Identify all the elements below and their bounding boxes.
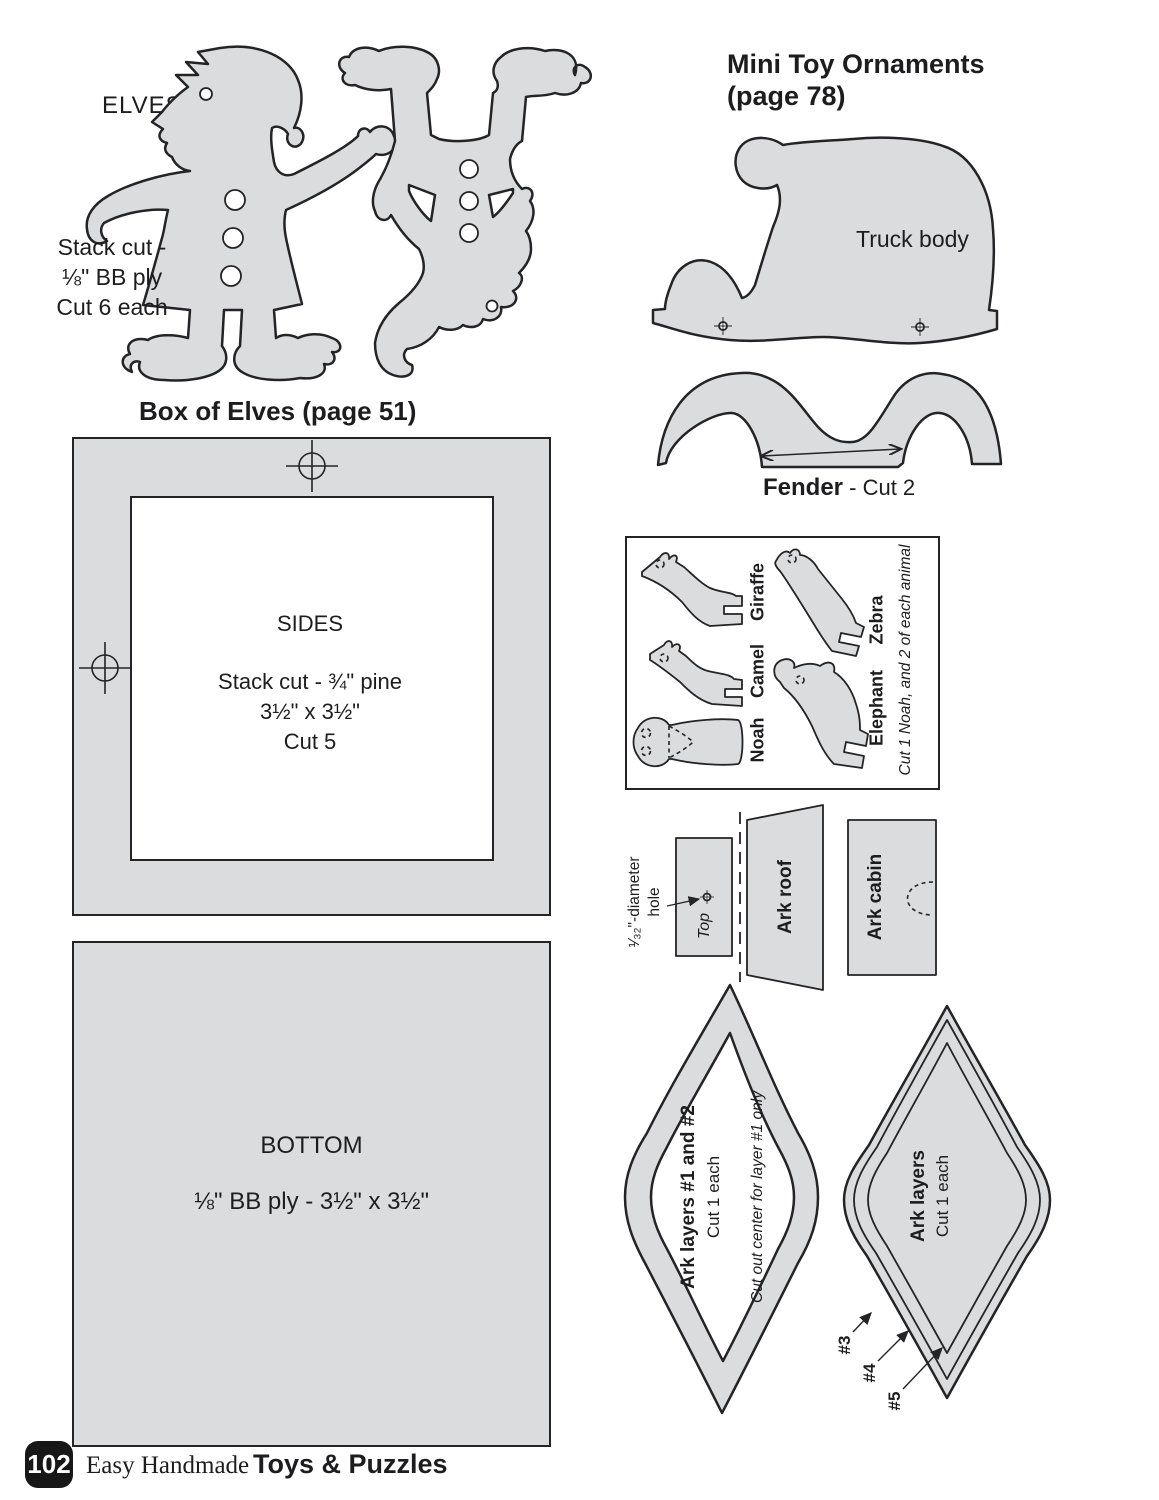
tag3-arrow [853, 1313, 871, 1332]
elephant-pattern-icon [770, 652, 875, 772]
bottom-text: BOTTOM ⅛" BB ply - 3½" x 3½" [74, 1131, 549, 1217]
giraffe-pattern-icon [638, 550, 743, 628]
zebra-pattern-icon [770, 545, 865, 657]
bottom-pattern-square: BOTTOM ⅛" BB ply - 3½" x 3½" [72, 941, 551, 1447]
animals-cut-caption: Cut 1 Noah, and 2 of each animal [897, 545, 915, 776]
truck-body-label: Truck body [856, 226, 969, 253]
elf-button-hole [221, 266, 241, 286]
camel-pattern-icon [638, 638, 743, 706]
sides-text: SIDES Stack cut - ¾" pine 3½" x 3½" Cut … [130, 609, 490, 757]
sides-title: SIDES [130, 609, 490, 639]
layer-3-tag: #3 [835, 1336, 855, 1355]
camel-label: Camel [748, 644, 769, 698]
hole-note-line: hole [645, 856, 665, 947]
noah-pattern-icon [632, 706, 747, 778]
note-line: Cut 6 each [28, 292, 196, 322]
sides-line: 3½" x 3½" [130, 697, 490, 727]
crosshair-registration-icon [77, 640, 133, 696]
fender-caption: Fender - Cut 2 [763, 474, 915, 502]
ark-top-label: Top [696, 913, 714, 939]
hole-note-line: ¹⁄₃₂"-diameter [625, 856, 645, 947]
fender-label: Fender [763, 474, 843, 501]
elf-button-hole [460, 160, 478, 178]
elves-cut-note: Stack cut - ⅛" BB ply Cut 6 each [28, 232, 196, 322]
mini-toy-heading: Mini Toy Ornaments (page 78) [727, 48, 985, 112]
note-line: Stack cut - [28, 232, 196, 262]
elf-eye-hole [200, 88, 212, 100]
box-of-elves-heading: Box of Elves (page 51) [139, 396, 416, 427]
footer-book-title: Toys & Puzzles [253, 1449, 448, 1480]
heading-line: (page 78) [727, 80, 985, 112]
tag4-arrow [878, 1331, 908, 1361]
ark-cabin-rect [848, 820, 936, 975]
ark-roof-label: Ark roof [775, 860, 797, 934]
fender-pattern-icon [650, 363, 1005, 473]
ark-layers-cut: Cut 1 each [933, 1155, 953, 1237]
elf-upside-down-pattern-icon [335, 45, 600, 390]
ark-layers-1-2-title: Ark layers #1 and #2 [678, 1105, 700, 1289]
bottom-line: ⅛" BB ply - 3½" x 3½" [74, 1187, 549, 1217]
elephant-label: Elephant [867, 670, 888, 746]
elf-upside-down-silhouette [339, 47, 591, 377]
bottom-title: BOTTOM [74, 1131, 549, 1161]
sides-pattern-frame: SIDES Stack cut - ¾" pine 3½" x 3½" Cut … [72, 437, 551, 916]
footer-series-title: Easy Handmade [86, 1452, 249, 1480]
fender-cut-note: - Cut 2 [843, 475, 915, 500]
ark-layers-1-2-note: Cut out center for layer #1 only [749, 1091, 767, 1303]
page-number: 102 [27, 1449, 70, 1480]
zebra-label: Zebra [867, 595, 888, 644]
layer-5-tag: #5 [885, 1392, 905, 1411]
book-page: ELVES Stack cut - ⅛" BB ply Cut 6 each B… [0, 0, 1159, 1500]
elf-button-hole [460, 224, 478, 242]
note-line: ⅛" BB ply [28, 262, 196, 292]
ark-cabin-label: Ark cabin [865, 854, 887, 941]
elf-button-hole [223, 228, 243, 248]
heading-line: Mini Toy Ornaments [727, 48, 985, 80]
elf-eye-hole [487, 301, 498, 312]
elf-button-hole [225, 190, 245, 210]
sides-line: Stack cut - ¾" pine [130, 667, 490, 697]
sides-line: Cut 5 [130, 727, 490, 757]
giraffe-label: Giraffe [748, 563, 769, 621]
ark-layers-title: Ark layers [908, 1150, 930, 1242]
crosshair-registration-icon [284, 438, 340, 494]
page-number-badge: 102 [25, 1441, 73, 1488]
hole-diameter-note: ¹⁄₃₂"-diameter hole [625, 856, 665, 947]
noah-label: Noah [748, 718, 769, 763]
layer-4-tag: #4 [860, 1364, 880, 1383]
elf-button-hole [460, 192, 478, 210]
ark-layers-1-2-cut: Cut 1 each [704, 1156, 724, 1238]
